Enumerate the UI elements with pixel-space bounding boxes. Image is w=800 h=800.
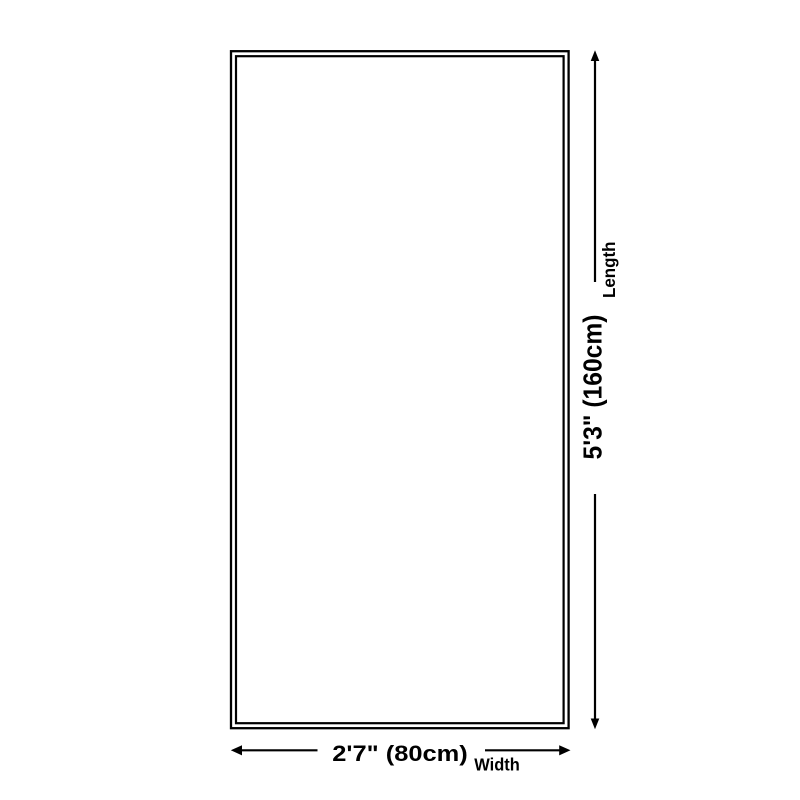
svg-text:2'7" (80cm): 2'7" (80cm) — [332, 741, 468, 766]
svg-text:5'3" (160cm): 5'3" (160cm) — [580, 315, 608, 460]
svg-text:Width: Width — [474, 755, 520, 775]
svg-text:Length: Length — [599, 242, 619, 299]
